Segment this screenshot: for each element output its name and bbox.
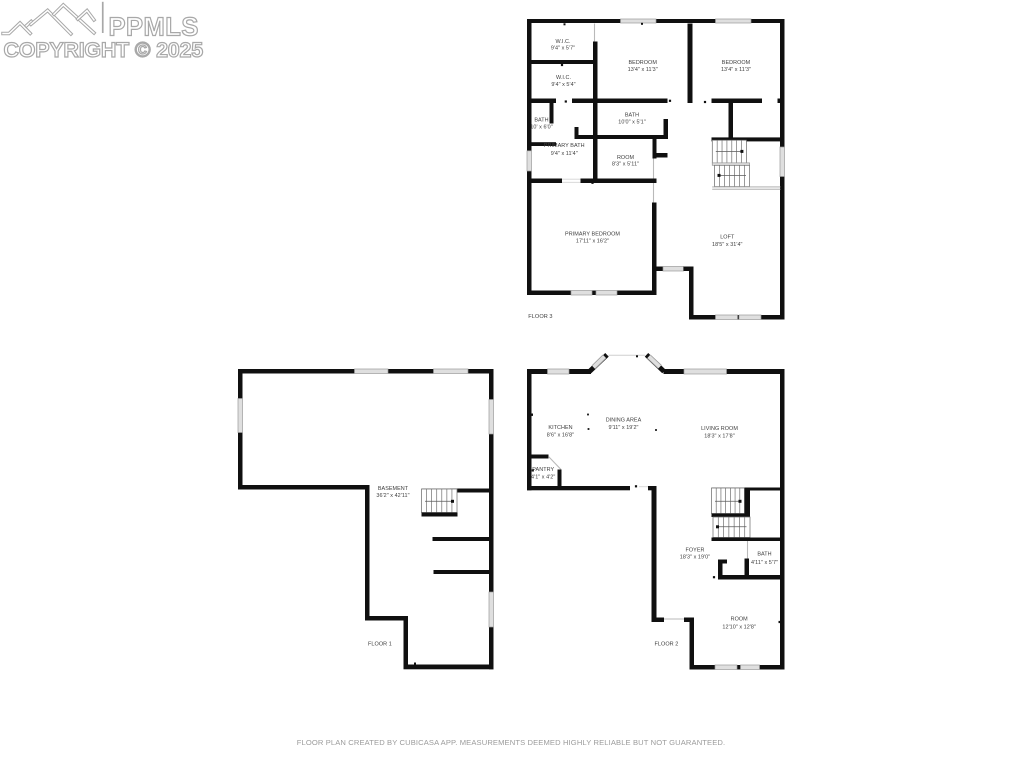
svg-text:FOYER: FOYER [686,548,705,554]
svg-text:10'0" x 5'1": 10'0" x 5'1" [618,120,645,126]
svg-text:BATH: BATH [625,112,639,118]
svg-text:W.I.C.: W.I.C. [555,39,571,45]
svg-text:18'3" x 17'8": 18'3" x 17'8" [704,433,734,439]
svg-text:ROOM: ROOM [617,155,635,161]
svg-text:9'11" x 19'2": 9'11" x 19'2" [608,425,638,431]
svg-text:9'4" x 5'7": 9'4" x 5'7" [551,46,575,52]
svg-text:COPYRIGHT © 2025: COPYRIGHT © 2025 [4,38,204,62]
svg-text:ROOM: ROOM [731,617,749,623]
svg-text:FLOOR 1: FLOOR 1 [368,641,392,647]
svg-text:36'2" x 42'11": 36'2" x 42'11" [376,493,409,499]
svg-text:4'1" x 4'2": 4'1" x 4'2" [531,474,555,480]
svg-text:BATH: BATH [534,117,548,123]
svg-text:13'4" x 11'3": 13'4" x 11'3" [721,67,751,73]
svg-text:8'3" x 5'11": 8'3" x 5'11" [612,161,639,167]
svg-text:LIVING ROOM: LIVING ROOM [701,426,738,432]
svg-text:LOFT: LOFT [720,235,735,241]
svg-text:PRIMARY BATH: PRIMARY BATH [544,143,585,149]
svg-text:8'6" x 16'8": 8'6" x 16'8" [547,432,574,438]
svg-text:4'11" x 5'7": 4'11" x 5'7" [751,560,778,566]
svg-text:BATH: BATH [757,552,771,558]
svg-text:9'4" x 11'4": 9'4" x 11'4" [551,151,578,157]
svg-text:17'11" x 16'2": 17'11" x 16'2" [576,239,609,245]
svg-text:FLOOR 3: FLOOR 3 [528,314,552,320]
svg-text:W.I.C.: W.I.C. [556,75,572,81]
svg-text:FLOOR 2: FLOOR 2 [655,641,679,647]
svg-text:12'10" x 12'8": 12'10" x 12'8" [722,624,756,630]
svg-text:PRIMARY BEDROOM: PRIMARY BEDROOM [565,232,620,238]
svg-text:10' x 6'0": 10' x 6'0" [530,125,552,131]
svg-text:FLOOR PLAN CREATED BY CUBICASA: FLOOR PLAN CREATED BY CUBICASA APP. MEAS… [297,738,726,747]
svg-text:BEDROOM: BEDROOM [722,60,751,66]
svg-text:9'4" x 5'4": 9'4" x 5'4" [551,82,575,88]
svg-text:PANTRY: PANTRY [532,467,554,473]
svg-text:BASEMENT: BASEMENT [378,486,409,492]
svg-text:18'3" x 19'0": 18'3" x 19'0" [680,555,710,561]
svg-text:BEDROOM: BEDROOM [628,60,657,66]
svg-text:13'4" x 11'3": 13'4" x 11'3" [628,67,658,73]
svg-text:18'5" x 31'4": 18'5" x 31'4" [712,242,742,248]
svg-text:KITCHEN: KITCHEN [548,425,572,431]
svg-text:DINING AREA: DINING AREA [606,417,642,423]
